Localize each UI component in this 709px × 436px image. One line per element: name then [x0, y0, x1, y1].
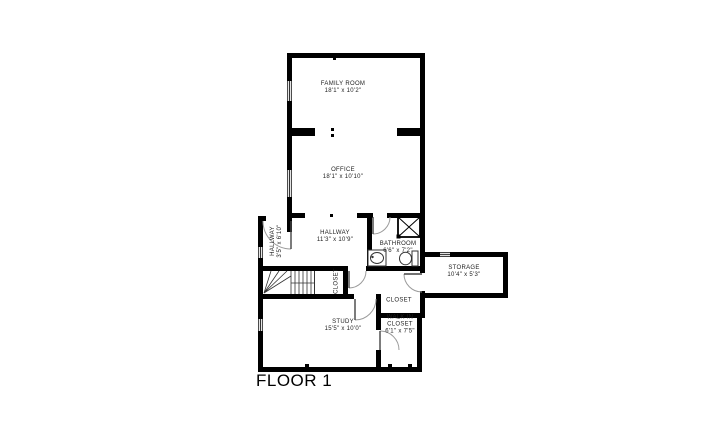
- door-study: [355, 299, 376, 320]
- room-dims: 15'5" x 10'0": [325, 326, 362, 333]
- door-bathroom: [373, 217, 390, 234]
- floorplan-graphic: [0, 0, 709, 436]
- room-label-family-room: FAMILY ROOM 18'1" x 10'2": [321, 81, 365, 95]
- room-dims: 18'1" x 10'10": [323, 174, 363, 181]
- room-dims: 3'5" x 6'10": [277, 224, 284, 257]
- shower-icon: [397, 217, 421, 239]
- room-label-storage: STORAGE 10'4" x 5'3": [447, 265, 480, 279]
- window-family-room: [287, 78, 293, 104]
- room-name: BATHROOM: [380, 241, 417, 248]
- room-label-closet-hall: CLOSET: [334, 268, 341, 294]
- room-label-hallway-small: HALLWAY 3'5" x 6'10": [270, 224, 284, 257]
- room-name: WALK IN: [385, 315, 415, 322]
- door-closet-vestibule: [349, 271, 366, 288]
- room-name: STORAGE: [447, 265, 480, 272]
- room-name: CLOSET: [334, 268, 341, 294]
- room-label-office: OFFICE 18'1" x 10'10": [323, 167, 363, 181]
- room-name: HALLWAY: [317, 230, 353, 237]
- stairs-icon: [264, 271, 314, 294]
- room-label-closet-vestibule: CLOSET: [386, 298, 412, 305]
- room-name: CLOSET: [386, 298, 412, 305]
- room-label-bathroom: BATHROOM 6'6" x 7'2": [380, 241, 417, 255]
- room-name: STUDY: [325, 319, 362, 326]
- room-label-study: STUDY 15'5" x 10'0": [325, 319, 362, 333]
- walls: [258, 53, 508, 372]
- room-dims: 18'1" x 10'2": [321, 88, 365, 95]
- room-label-walk-in-closet: WALK IN CLOSET 6'1" x 7'5": [385, 315, 415, 336]
- room-dims: 11'3" x 10'9": [317, 237, 353, 244]
- room-dims: 10'4" x 5'3": [447, 272, 480, 279]
- window-office: [287, 167, 293, 200]
- room-name: HALLWAY: [270, 224, 277, 257]
- room-name: FAMILY ROOM: [321, 81, 365, 88]
- window-storage: [437, 252, 453, 258]
- room-dims: 6'1" x 7'5": [385, 329, 415, 336]
- room-name: CLOSET: [385, 322, 415, 329]
- floorplan-page: FAMILY ROOM 18'1" x 10'2" OFFICE 18'1" x…: [0, 0, 709, 436]
- window-study: [258, 316, 264, 334]
- window-hallway-small: [258, 244, 264, 261]
- room-name: OFFICE: [323, 167, 363, 174]
- room-label-hallway-main: HALLWAY 11'3" x 10'9": [317, 230, 353, 244]
- room-dims: 6'6" x 7'2": [380, 248, 417, 255]
- door-storage: [404, 274, 422, 292]
- floor-title: FLOOR 1: [256, 371, 332, 391]
